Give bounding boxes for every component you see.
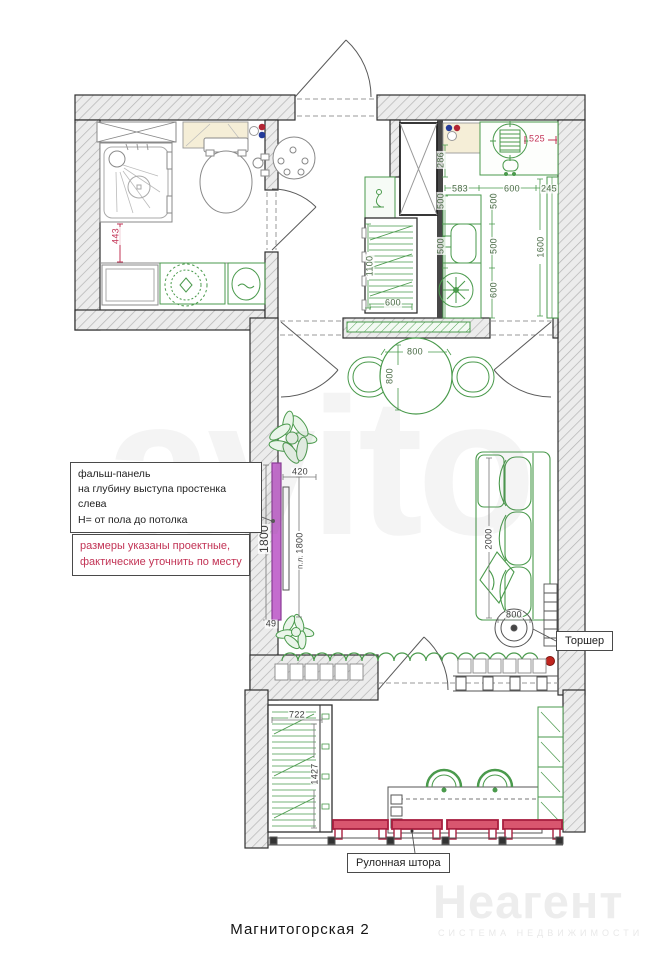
dim-label: 500 bbox=[490, 192, 499, 210]
wall bbox=[390, 120, 400, 177]
wall bbox=[245, 690, 268, 848]
kitchen-top-counter bbox=[480, 121, 558, 176]
panel-note-line: фальш-панель bbox=[78, 467, 254, 482]
dim-label: 583 bbox=[451, 185, 469, 194]
vent-duct bbox=[400, 123, 437, 215]
bathroom bbox=[97, 122, 269, 306]
wall bbox=[75, 95, 295, 120]
false-panel bbox=[272, 463, 281, 620]
hot-water-dot bbox=[454, 125, 460, 131]
wall bbox=[75, 120, 100, 330]
dim-label: 2000 bbox=[485, 527, 494, 550]
dim-label: 1800 bbox=[296, 531, 305, 554]
dim-label: 500 bbox=[437, 192, 446, 210]
wall bbox=[563, 690, 585, 832]
shower bbox=[100, 143, 172, 222]
wall bbox=[75, 310, 265, 330]
wall-console bbox=[347, 322, 470, 332]
wall bbox=[553, 318, 558, 338]
entrance-door bbox=[295, 40, 371, 97]
hob bbox=[439, 273, 473, 307]
balcony-wardrobe bbox=[268, 705, 332, 832]
radiator-right bbox=[458, 659, 546, 673]
plan-title: Магнитогорская 2 bbox=[175, 921, 425, 938]
panel-note-line: Н= от пола до потолка bbox=[78, 513, 254, 528]
balcony-door bbox=[378, 637, 448, 690]
tall-cabinet bbox=[547, 177, 558, 318]
coat-hook-unit bbox=[365, 177, 395, 218]
dim-label: п.л. bbox=[296, 554, 304, 570]
dim-label: 800 bbox=[406, 348, 424, 357]
ceiling-lamp bbox=[273, 137, 315, 179]
blind-segment bbox=[392, 820, 442, 839]
dim-label: 600 bbox=[490, 281, 499, 299]
dim-label: 49 bbox=[265, 620, 278, 629]
sizes-note-line: фактические уточнить по месту bbox=[80, 555, 242, 571]
hot-water-dot bbox=[259, 124, 266, 131]
dim-label: 1600 bbox=[537, 235, 546, 258]
blind-segment bbox=[503, 820, 562, 839]
dim-label: 500 bbox=[490, 237, 499, 255]
dim-label: 600 bbox=[384, 299, 402, 308]
brand-watermark: Неагент bbox=[433, 874, 623, 929]
sizes-note: размеры указаны проектные, фактические у… bbox=[72, 534, 250, 576]
balcony-shelves bbox=[538, 707, 563, 828]
panel-note: фальш-панель на глубину выступа простенк… bbox=[70, 462, 262, 533]
dryer-machine bbox=[160, 263, 225, 306]
socket-dot bbox=[546, 657, 555, 666]
dim-label: 443 bbox=[112, 227, 121, 245]
dim-label: 600 bbox=[503, 185, 521, 194]
roller-blind-label: Рулонная штора bbox=[347, 853, 450, 873]
water-points bbox=[250, 124, 266, 139]
blind-segment bbox=[333, 820, 388, 839]
panel-note-line: на глубину выступа простенка слева bbox=[78, 482, 254, 512]
hallway bbox=[273, 123, 437, 313]
tv bbox=[283, 487, 289, 590]
roller-blinds bbox=[333, 820, 562, 839]
dim-label: 420 bbox=[291, 468, 309, 477]
dim-label: 1100 bbox=[366, 255, 375, 278]
floor-plan-page: 443 525 286 583 600 245 500 500 500 500 … bbox=[0, 0, 668, 960]
dim-label: 800 bbox=[386, 367, 395, 385]
floor-lamp-label: Торшер bbox=[556, 631, 613, 651]
sizes-note-line: размеры указаны проектные, bbox=[80, 539, 242, 555]
cold-water-dot bbox=[259, 132, 266, 139]
dim-label: 722 bbox=[288, 711, 306, 720]
bathroom-door bbox=[272, 189, 316, 250]
cold-water-dot bbox=[446, 125, 452, 131]
hall-living-door bbox=[281, 322, 338, 397]
toilet bbox=[200, 138, 252, 213]
dim-label: 245 bbox=[540, 185, 558, 194]
kitchen-living-door bbox=[494, 322, 551, 397]
wall bbox=[377, 95, 585, 120]
dining-chair-right bbox=[452, 357, 494, 397]
dim-label: 500 bbox=[437, 237, 446, 255]
kitchen-left-counter bbox=[443, 195, 481, 318]
wall bbox=[558, 120, 585, 695]
balcony-glazing bbox=[268, 837, 563, 845]
brand-watermark-tagline: СИСТЕМА НЕДВИЖИМОСТИ bbox=[438, 928, 643, 938]
dim-label: 525 bbox=[528, 135, 546, 144]
blind-label-leader bbox=[412, 832, 415, 853]
dim-label: 286 bbox=[437, 151, 446, 169]
dim-label: 800 bbox=[505, 611, 523, 620]
shelf bbox=[97, 122, 176, 142]
bath-sink bbox=[228, 263, 265, 304]
blind-segment bbox=[447, 820, 498, 839]
dim-label: 1427 bbox=[311, 762, 320, 785]
